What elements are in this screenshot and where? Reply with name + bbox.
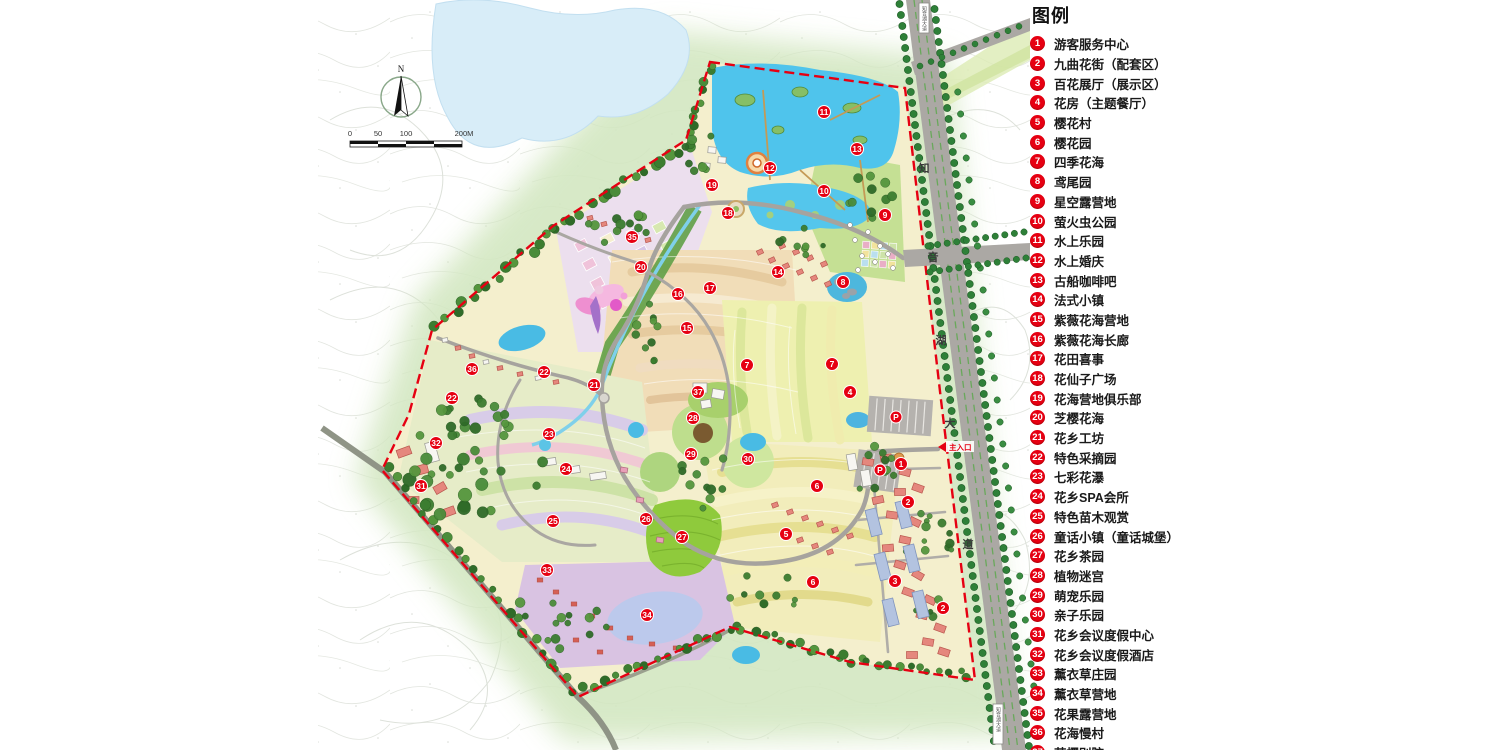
legend-item-8: 8鸢尾园 — [1030, 172, 1260, 192]
svg-text:2: 2 — [906, 497, 911, 507]
svg-text:29: 29 — [686, 449, 696, 459]
legend-item-label: 花乡SPA会所 — [1054, 487, 1129, 506]
map-marker-35: 35 — [626, 231, 639, 244]
legend-number-badge: 10 — [1030, 214, 1045, 229]
map-marker-17: 17 — [704, 282, 717, 295]
legend-number-badge: 3 — [1030, 76, 1045, 91]
svg-text:37: 37 — [693, 387, 703, 397]
legend-title: 图例 — [1032, 2, 1260, 28]
legend-number-badge: 4 — [1030, 95, 1045, 110]
legend-number-badge: 30 — [1030, 607, 1045, 622]
svg-text:6: 6 — [815, 481, 820, 491]
legend-item-10: 10萤火虫公园 — [1030, 211, 1260, 231]
map-marker-19: 19 — [706, 179, 719, 192]
svg-text:18: 18 — [723, 208, 733, 218]
legend-item-30: 30亲子乐园 — [1030, 605, 1260, 625]
legend-number-badge: 20 — [1030, 410, 1045, 425]
legend-item-label: 花海营地俱乐部 — [1054, 389, 1142, 408]
road-name-char: 道 — [963, 537, 974, 551]
legend-item-label: 萤火虫公园 — [1054, 212, 1117, 231]
legend-item-11: 11水上乐园 — [1030, 231, 1260, 251]
legend-item-24: 24花乡SPA会所 — [1030, 487, 1260, 507]
svg-text:P: P — [893, 412, 899, 422]
map-marker-4: 4 — [844, 386, 857, 399]
legend-number-badge: 15 — [1030, 312, 1045, 327]
svg-text:19: 19 — [707, 180, 717, 190]
legend-item-22: 22特色采摘园 — [1030, 447, 1260, 467]
svg-text:24: 24 — [561, 464, 571, 474]
svg-text:16: 16 — [673, 289, 683, 299]
legend-item-35: 35花果露营地 — [1030, 703, 1260, 723]
svg-text:10: 10 — [819, 186, 829, 196]
svg-text:知音湖大道: 知音湖大道 — [995, 706, 1001, 733]
legend-number-badge: 24 — [1030, 489, 1045, 504]
legend-item-9: 9星空露营地 — [1030, 192, 1260, 212]
parking-marker: P — [874, 464, 886, 476]
svg-text:15: 15 — [682, 323, 692, 333]
svg-text:50: 50 — [374, 129, 382, 138]
map-marker-7: 7 — [826, 358, 839, 371]
map-marker-9: 9 — [879, 209, 892, 222]
legend-item-5: 5樱花村 — [1030, 113, 1260, 133]
legend-item-36: 36花海慢村 — [1030, 723, 1260, 743]
svg-text:17: 17 — [705, 283, 715, 293]
legend-number-badge: 8 — [1030, 174, 1045, 189]
svg-text:9: 9 — [883, 210, 888, 220]
legend-item-3: 3百花展厅（展示区） — [1030, 73, 1260, 93]
legend-number-badge: 25 — [1030, 509, 1045, 524]
legend-panel: 图例 1游客服务中心2九曲花街（配套区）3百花展厅（展示区）4花房（主题餐厅）5… — [1030, 2, 1260, 750]
map-marker-22: 22 — [446, 392, 459, 405]
svg-text:知音湖大道: 知音湖大道 — [921, 5, 927, 32]
legend-item-label: 童话小镇（童话城堡） — [1054, 527, 1179, 546]
map-marker-7: 7 — [741, 359, 754, 372]
legend-item-label: 樱花园 — [1054, 133, 1092, 152]
svg-text:5: 5 — [784, 529, 789, 539]
legend-item-label: 百花展厅（展示区） — [1054, 74, 1167, 93]
legend-item-7: 7四季花海 — [1030, 152, 1260, 172]
legend-number-badge: 18 — [1030, 371, 1045, 386]
legend-items: 1游客服务中心2九曲花街（配套区）3百花展厅（展示区）4花房（主题餐厅）5樱花村… — [1030, 34, 1260, 750]
legend-number-badge: 21 — [1030, 430, 1045, 445]
svg-text:33: 33 — [542, 565, 552, 575]
legend-number-badge: 32 — [1030, 647, 1045, 662]
legend-item-label: 花仙子广场 — [1054, 369, 1117, 388]
road-name-char: 湖 — [936, 333, 947, 347]
legend-item-15: 15紫薇花海营地 — [1030, 310, 1260, 330]
legend-item-37: 37芝樱别院 — [1030, 743, 1260, 750]
legend-number-badge: 13 — [1030, 273, 1045, 288]
map-marker-8: 8 — [837, 276, 850, 289]
map-marker-26: 26 — [640, 513, 653, 526]
map-marker-3: 3 — [889, 575, 902, 588]
map-marker-1: 1 — [895, 458, 908, 471]
map-marker-34: 34 — [641, 609, 654, 622]
svg-text:11: 11 — [820, 107, 829, 117]
svg-text:13: 13 — [852, 144, 862, 154]
legend-item-label: 花海慢村 — [1054, 723, 1104, 742]
svg-text:26: 26 — [641, 514, 651, 524]
legend-item-28: 28植物迷宫 — [1030, 566, 1260, 586]
map-marker-33: 33 — [541, 564, 554, 577]
legend-item-1: 1游客服务中心 — [1030, 34, 1260, 54]
legend-number-badge: 37 — [1030, 745, 1045, 750]
svg-text:27: 27 — [677, 532, 687, 542]
legend-number-badge: 11 — [1030, 233, 1045, 248]
legend-item-label: 法式小镇 — [1054, 290, 1104, 309]
legend-item-27: 27花乡茶园 — [1030, 546, 1260, 566]
legend-item-label: 紫薇花海长廊 — [1054, 330, 1129, 349]
legend-number-badge: 2 — [1030, 56, 1045, 71]
legend-item-32: 32花乡会议度假酒店 — [1030, 644, 1260, 664]
legend-item-18: 18花仙子广场 — [1030, 369, 1260, 389]
map-marker-27: 27 — [676, 531, 689, 544]
svg-text:3: 3 — [893, 576, 898, 586]
map-marker-14: 14 — [772, 266, 785, 279]
map-marker-29: 29 — [685, 448, 698, 461]
legend-number-badge: 5 — [1030, 115, 1045, 130]
main-lake — [712, 63, 900, 176]
legend-item-label: 星空露营地 — [1054, 192, 1117, 211]
legend-number-badge: 19 — [1030, 391, 1045, 406]
legend-item-label: 七彩花瀑 — [1054, 467, 1104, 486]
map-marker-30: 30 — [742, 453, 755, 466]
map-marker-28: 28 — [687, 412, 700, 425]
legend-item-19: 19花海营地俱乐部 — [1030, 388, 1260, 408]
legend-item-label: 植物迷宫 — [1054, 566, 1104, 585]
legend-number-badge: 27 — [1030, 548, 1045, 563]
legend-number-badge: 17 — [1030, 351, 1045, 366]
road-name-char: 音 — [928, 250, 939, 264]
svg-text:7: 7 — [830, 359, 835, 369]
svg-text:31: 31 — [416, 481, 426, 491]
svg-text:200M: 200M — [455, 129, 474, 138]
compass-n-label: N — [398, 64, 405, 74]
legend-item-17: 17花田喜事 — [1030, 349, 1260, 369]
legend-item-label: 花乡工坊 — [1054, 428, 1104, 447]
map-marker-20: 20 — [635, 261, 648, 274]
legend-item-21: 21花乡工坊 — [1030, 428, 1260, 448]
map-marker-36: 36 — [466, 363, 479, 376]
legend-number-badge: 33 — [1030, 666, 1045, 681]
legend-item-label: 花田喜事 — [1054, 349, 1104, 368]
map-marker-6: 6 — [807, 576, 820, 589]
legend-number-badge: 22 — [1030, 450, 1045, 465]
svg-text:23: 23 — [544, 429, 554, 439]
site-plan-map: 知音湖大道 知音湖大道 知音湖大道 主入口 122345667789101112… — [0, 0, 1500, 750]
legend-number-badge: 6 — [1030, 135, 1045, 150]
svg-text:14: 14 — [773, 267, 783, 277]
master-plan-canvas: 知音湖大道 知音湖大道 知音湖大道 主入口 122345667789101112… — [0, 0, 1500, 750]
road-name-char: 知 — [918, 161, 930, 175]
legend-item-label: 水上婚庆 — [1054, 251, 1104, 270]
map-marker-32: 32 — [430, 437, 443, 450]
svg-text:12: 12 — [765, 163, 775, 173]
legend-item-label: 樱花村 — [1054, 113, 1092, 132]
svg-text:P: P — [877, 465, 883, 475]
legend-item-label: 薰衣草营地 — [1054, 684, 1117, 703]
svg-text:34: 34 — [642, 610, 652, 620]
legend-number-badge: 28 — [1030, 568, 1045, 583]
map-marker-22: 22 — [538, 366, 551, 379]
legend-item-label: 芝樱别院 — [1054, 743, 1104, 750]
map-marker-25: 25 — [547, 515, 560, 528]
legend-item-31: 31花乡会议度假中心 — [1030, 625, 1260, 645]
legend-item-label: 萌宠乐园 — [1054, 586, 1104, 605]
legend-number-badge: 35 — [1030, 706, 1045, 721]
legend-item-2: 2九曲花街（配套区） — [1030, 54, 1260, 74]
map-marker-6: 6 — [811, 480, 824, 493]
legend-item-label: 花房（主题餐厅） — [1054, 93, 1154, 112]
svg-text:22: 22 — [447, 393, 457, 403]
svg-text:32: 32 — [431, 438, 441, 448]
svg-text:36: 36 — [467, 364, 477, 374]
svg-text:35: 35 — [627, 232, 637, 242]
legend-item-13: 13古船咖啡吧 — [1030, 270, 1260, 290]
svg-text:22: 22 — [539, 367, 549, 377]
svg-text:主入口: 主入口 — [949, 442, 972, 452]
svg-text:6: 6 — [811, 577, 816, 587]
legend-number-badge: 34 — [1030, 686, 1045, 701]
map-marker-21: 21 — [588, 379, 601, 392]
map-marker-24: 24 — [560, 463, 573, 476]
map-marker-10: 10 — [818, 185, 831, 198]
svg-text:20: 20 — [636, 262, 646, 272]
svg-text:28: 28 — [688, 413, 698, 423]
legend-item-label: 花果露营地 — [1054, 704, 1117, 723]
svg-text:2: 2 — [941, 603, 946, 613]
svg-text:1: 1 — [899, 459, 904, 469]
legend-item-label: 花乡会议度假中心 — [1054, 625, 1154, 644]
legend-number-badge: 36 — [1030, 725, 1045, 740]
legend-number-badge: 23 — [1030, 469, 1045, 484]
legend-item-12: 12水上婚庆 — [1030, 251, 1260, 271]
legend-number-badge: 7 — [1030, 154, 1045, 169]
legend-item-33: 33薰衣草庄园 — [1030, 664, 1260, 684]
legend-item-label: 特色苗木观赏 — [1054, 507, 1129, 526]
legend-item-label: 鸢尾园 — [1054, 172, 1092, 191]
legend-item-25: 25特色苗木观赏 — [1030, 507, 1260, 527]
legend-item-23: 23七彩花瀑 — [1030, 467, 1260, 487]
legend-number-badge: 26 — [1030, 529, 1045, 544]
legend-item-14: 14法式小镇 — [1030, 290, 1260, 310]
legend-item-label: 花乡会议度假酒店 — [1054, 645, 1154, 664]
legend-item-label: 古船咖啡吧 — [1054, 271, 1117, 290]
map-marker-18: 18 — [722, 207, 735, 220]
svg-text:4: 4 — [848, 387, 853, 397]
map-marker-23: 23 — [543, 428, 556, 441]
legend-item-label: 花乡茶园 — [1054, 546, 1104, 565]
legend-number-badge: 1 — [1030, 36, 1045, 51]
legend-number-badge: 16 — [1030, 332, 1045, 347]
map-marker-13: 13 — [851, 143, 864, 156]
svg-text:0: 0 — [348, 129, 352, 138]
legend-item-29: 29萌宠乐园 — [1030, 585, 1260, 605]
svg-text:100: 100 — [400, 129, 413, 138]
map-marker-16: 16 — [672, 288, 685, 301]
road-name-char: 大 — [945, 416, 956, 430]
svg-text:25: 25 — [548, 516, 558, 526]
legend-item-label: 芝樱花海 — [1054, 408, 1104, 427]
map-marker-5: 5 — [780, 528, 793, 541]
map-marker-31: 31 — [415, 480, 428, 493]
svg-text:21: 21 — [589, 380, 599, 390]
legend-item-6: 6樱花园 — [1030, 132, 1260, 152]
legend-item-26: 26童话小镇（童话城堡） — [1030, 526, 1260, 546]
legend-item-label: 亲子乐园 — [1054, 605, 1104, 624]
legend-number-badge: 9 — [1030, 194, 1045, 209]
legend-number-badge: 14 — [1030, 292, 1045, 307]
map-marker-2: 2 — [902, 496, 915, 509]
map-marker-11: 11 — [818, 106, 831, 119]
legend-item-label: 水上乐园 — [1054, 231, 1104, 250]
map-marker-15: 15 — [681, 322, 694, 335]
svg-text:30: 30 — [743, 454, 753, 464]
legend-item-label: 紫薇花海营地 — [1054, 310, 1129, 329]
legend-number-badge: 31 — [1030, 627, 1045, 642]
map-marker-2: 2 — [937, 602, 950, 615]
legend-number-badge: 12 — [1030, 253, 1045, 268]
map-marker-37: 37 — [692, 386, 705, 399]
legend-item-label: 特色采摘园 — [1054, 448, 1117, 467]
legend-item-label: 游客服务中心 — [1054, 34, 1129, 53]
legend-item-16: 16紫薇花海长廊 — [1030, 329, 1260, 349]
svg-text:7: 7 — [745, 360, 750, 370]
legend-item-label: 薰衣草庄园 — [1054, 664, 1117, 683]
map-marker-12: 12 — [764, 162, 777, 175]
legend-number-badge: 29 — [1030, 588, 1045, 603]
legend-item-label: 九曲花街（配套区） — [1054, 54, 1167, 73]
legend-item-4: 4花房（主题餐厅） — [1030, 93, 1260, 113]
legend-item-34: 34薰衣草营地 — [1030, 684, 1260, 704]
legend-item-20: 20芝樱花海 — [1030, 408, 1260, 428]
legend-item-label: 四季花海 — [1054, 152, 1104, 171]
svg-text:8: 8 — [841, 277, 846, 287]
parking-marker: P — [890, 411, 902, 423]
